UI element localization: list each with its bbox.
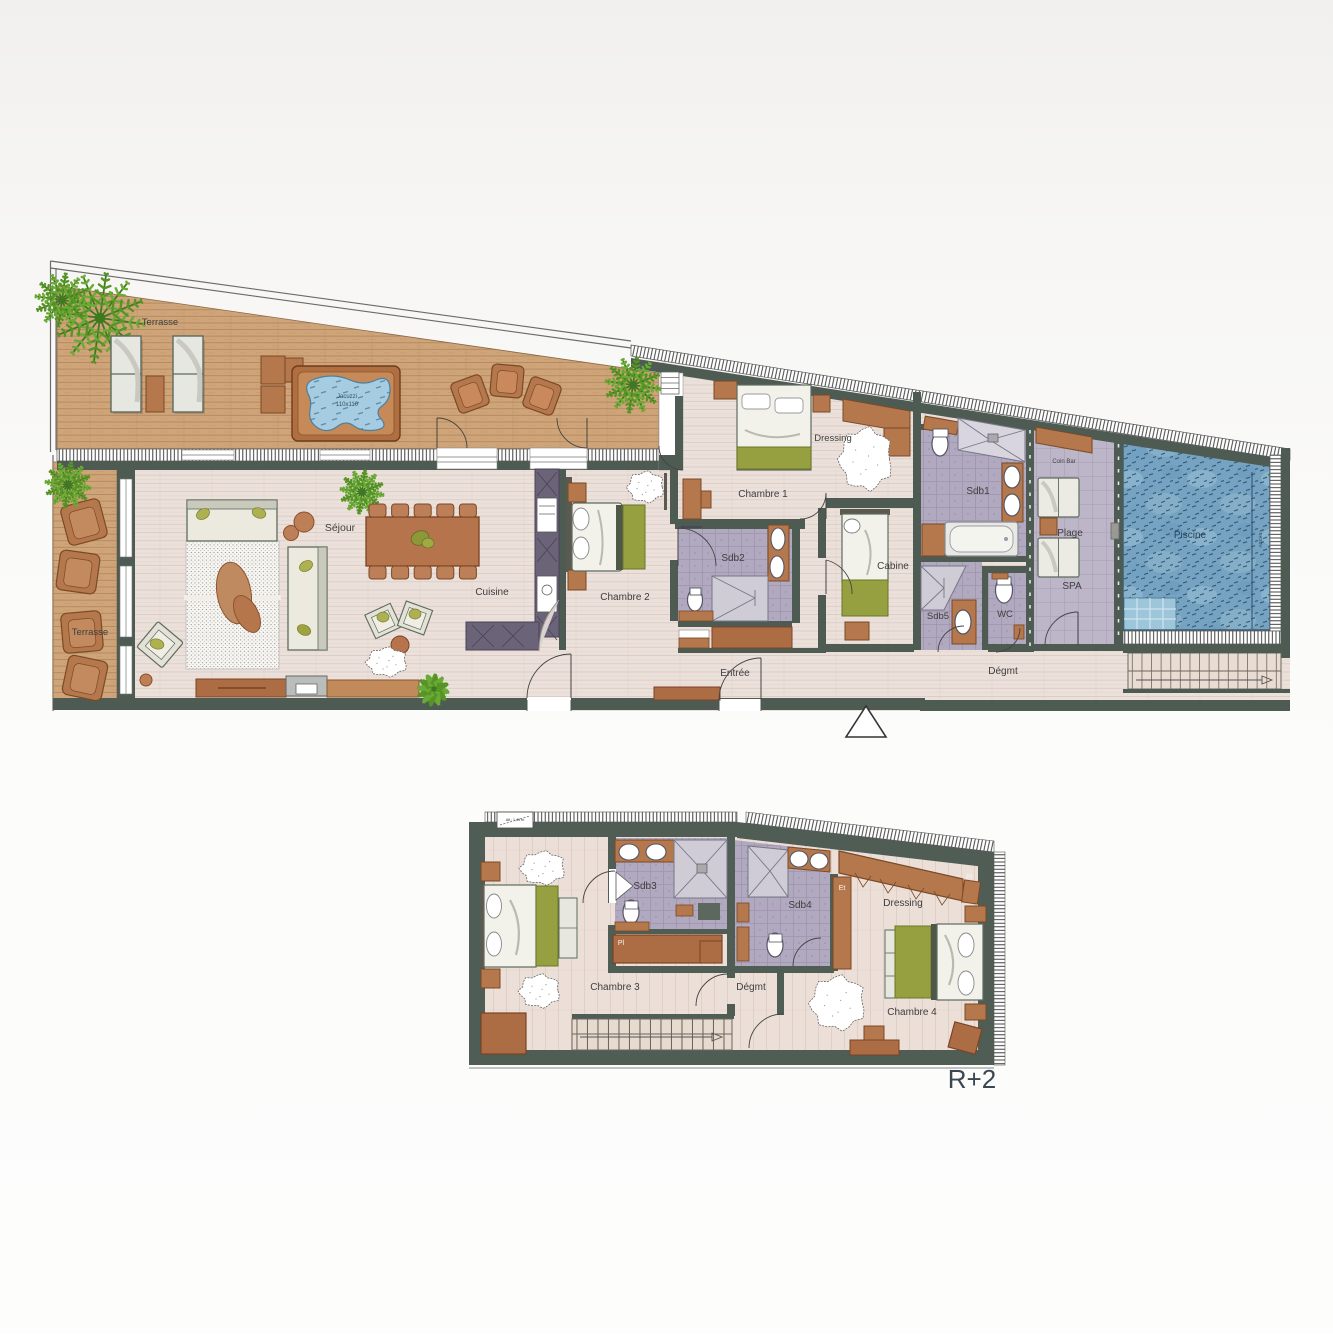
svg-text:Sdb5: Sdb5 [927, 611, 949, 622]
svg-text:Sdb3: Sdb3 [633, 881, 657, 892]
svg-text:Jacuzzi: Jacuzzi [337, 394, 357, 400]
svg-text:Coin Bar: Coin Bar [1052, 459, 1075, 465]
svg-text:Et: Et [839, 885, 846, 892]
svg-text:Entrée: Entrée [720, 668, 750, 679]
svg-text:Dégmt: Dégmt [736, 982, 766, 993]
svg-text:Terrasse: Terrasse [142, 317, 178, 328]
svg-text:Chambre 1: Chambre 1 [738, 489, 788, 500]
svg-text:110x110: 110x110 [336, 402, 359, 408]
svg-text:Dégmt: Dégmt [988, 666, 1018, 677]
svg-text:Cuisine: Cuisine [475, 587, 509, 598]
svg-text:R+2: R+2 [948, 1064, 996, 1094]
svg-text:Chambre 4: Chambre 4 [887, 1007, 937, 1018]
svg-text:Piscine: Piscine [1174, 530, 1207, 541]
svg-text:Plage: Plage [1057, 528, 1083, 539]
svg-text:Dressing: Dressing [814, 433, 852, 444]
svg-text:Sdb2: Sdb2 [721, 553, 745, 564]
svg-text:Chambre 3: Chambre 3 [590, 982, 640, 993]
svg-text:Sdb1: Sdb1 [966, 486, 990, 497]
svg-text:Dressing: Dressing [883, 898, 922, 909]
svg-text:Cabine: Cabine [877, 561, 909, 572]
svg-text:Terrasse: Terrasse [72, 627, 108, 638]
svg-text:WC: WC [997, 609, 1013, 620]
svg-text:SPA: SPA [1062, 581, 1082, 592]
svg-text:Pl: Pl [618, 940, 625, 947]
svg-text:Sdb4: Sdb4 [788, 900, 812, 911]
svg-text:Séjour: Séjour [325, 522, 356, 534]
svg-text:Alt : 1,49 m: Alt : 1,49 m [506, 817, 525, 822]
svg-text:ACCèS: ACCèS [1258, 532, 1263, 547]
svg-text:Pl: Pl [966, 874, 972, 881]
svg-text:Chambre 2: Chambre 2 [600, 592, 650, 603]
